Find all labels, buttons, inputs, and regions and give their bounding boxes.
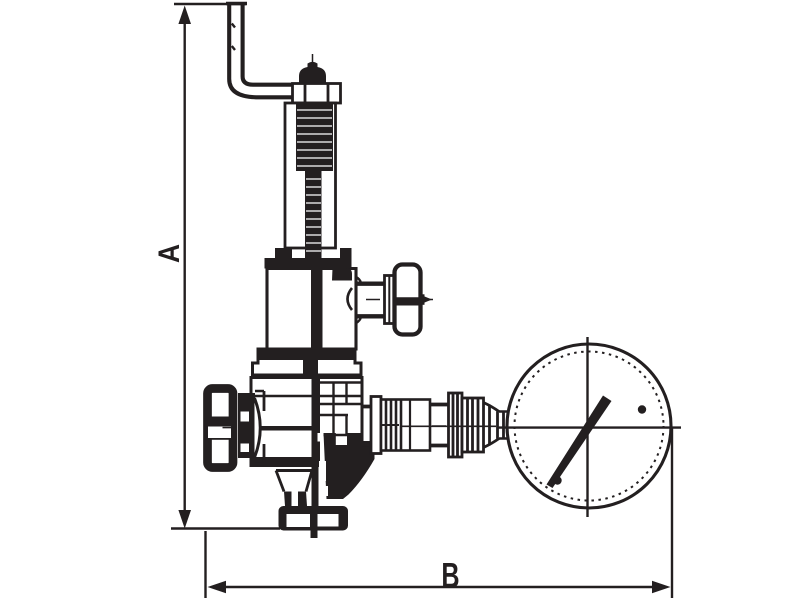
svg-text:A: A <box>151 244 185 263</box>
svg-text:B: B <box>441 557 459 596</box>
